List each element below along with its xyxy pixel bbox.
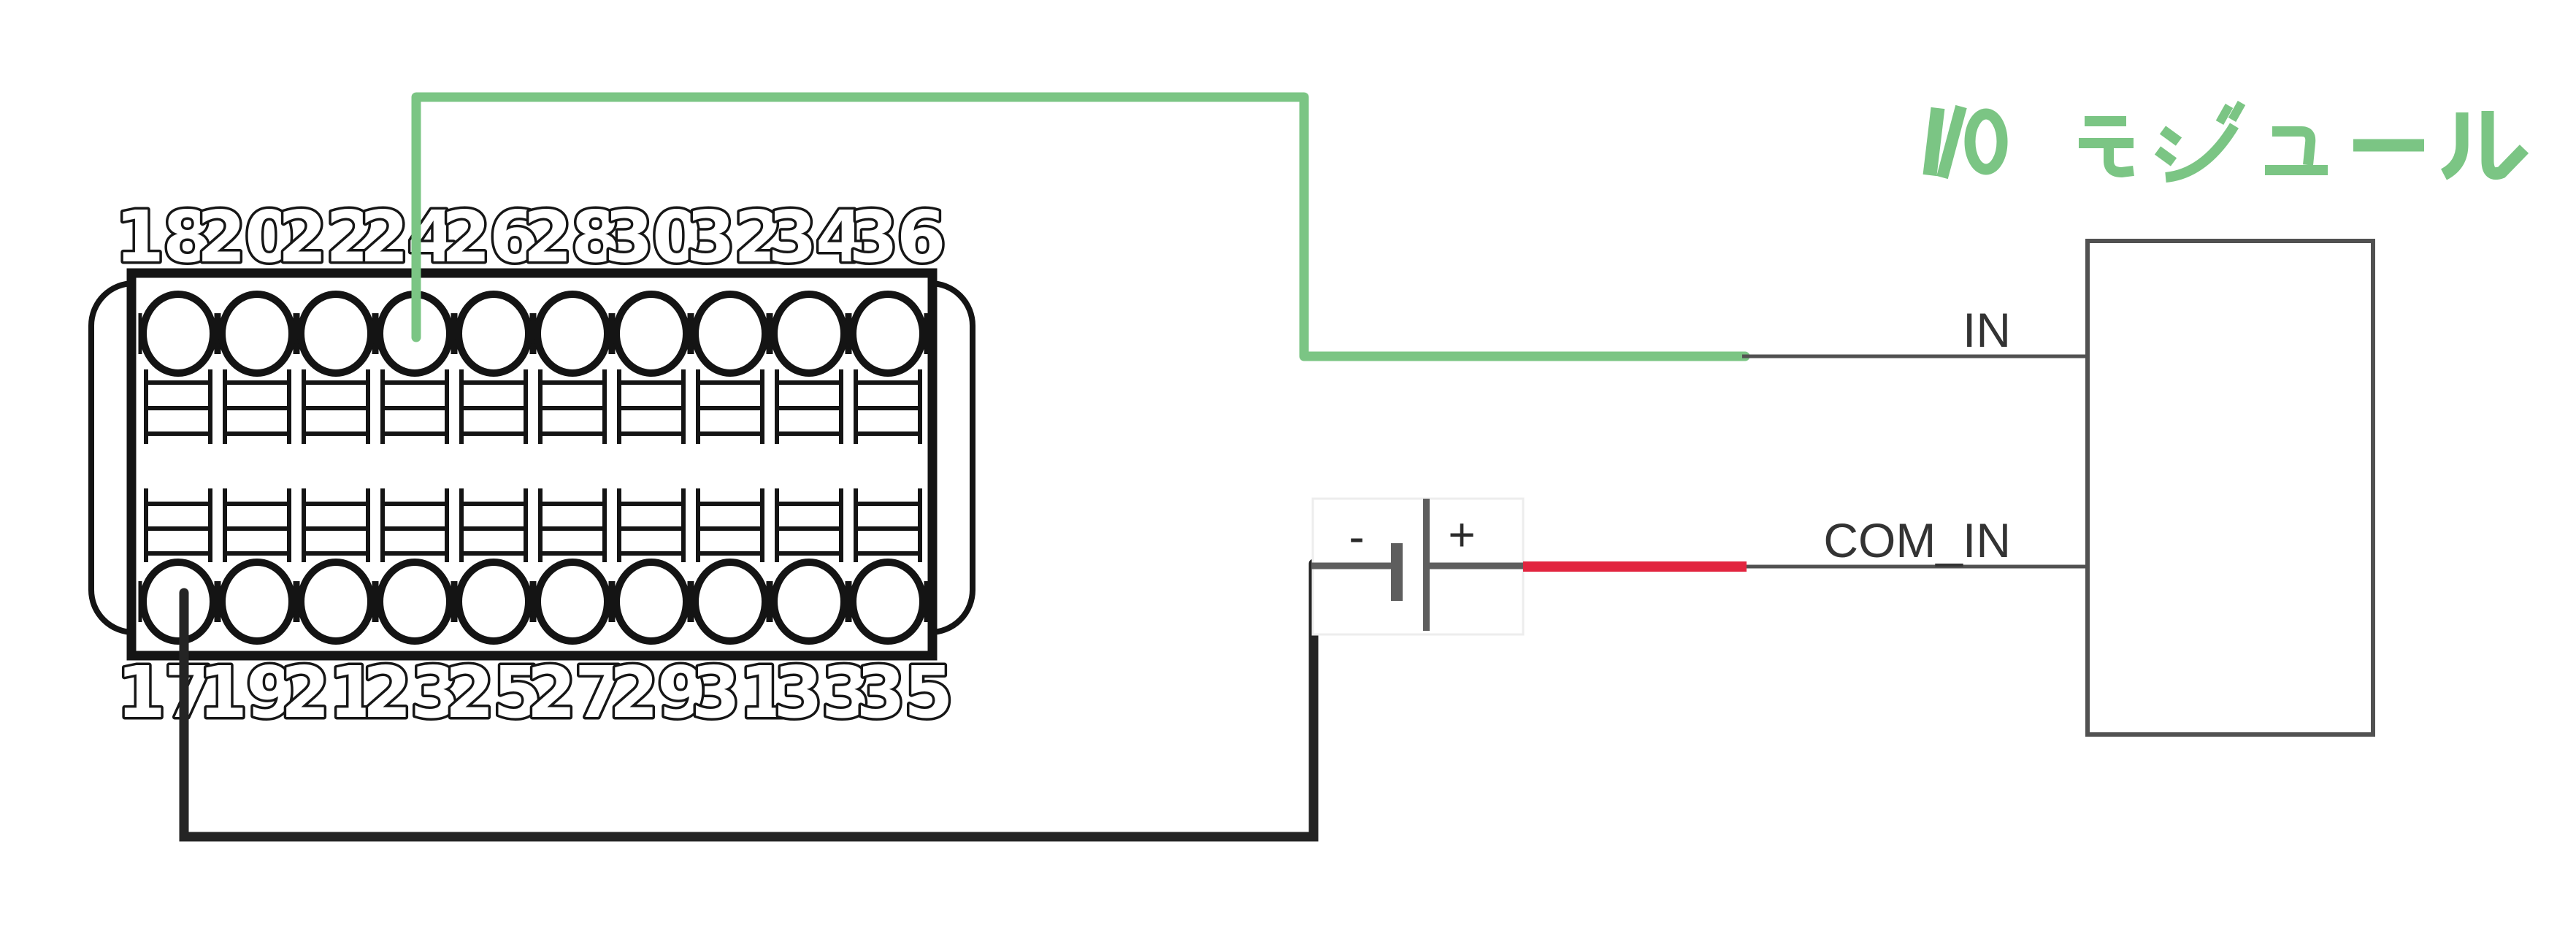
battery: - + xyxy=(1311,499,1523,634)
pin-number-bottom-9: 33 xyxy=(774,651,870,734)
battery-positive-label: + xyxy=(1448,508,1475,561)
io-module-input-label: IN xyxy=(1963,303,2011,357)
io-module-title: I/Oモジュール xyxy=(1930,98,2524,194)
title-glyph-yu xyxy=(2265,131,2328,170)
terminal-block: 18 20 22 24 26 28 30 32 34 36 17 19 21 2… xyxy=(91,196,973,734)
battery-negative-label: - xyxy=(1349,510,1364,563)
pin-number-top-10: 36 xyxy=(849,196,945,278)
title-glyph-O xyxy=(1970,114,2002,169)
battery-plate-positive xyxy=(1423,499,1430,631)
pin-number-bottom-2: 19 xyxy=(199,651,294,734)
pin-numbers-top: 18 20 22 24 26 28 30 32 34 36 xyxy=(115,196,945,278)
pin-numbers-bottom: 17 19 21 23 25 27 29 31 33 35 xyxy=(117,651,952,734)
title-glyph-ru xyxy=(2444,111,2524,174)
pin-number-bottom-6: 27 xyxy=(527,651,623,734)
io-wiring-diagram: 18 20 22 24 26 28 30 32 34 36 17 19 21 2… xyxy=(0,0,2576,936)
io-module-box xyxy=(2088,241,2373,734)
title-glyph-slash xyxy=(1942,107,1961,177)
io-module-common-label: COM_IN xyxy=(1823,513,2011,567)
title-glyph-mo xyxy=(2079,121,2134,172)
diagram-canvas: 18 20 22 24 26 28 30 32 34 36 17 19 21 2… xyxy=(0,0,2576,936)
pin-number-bottom-8: 31 xyxy=(691,651,787,734)
title-glyph-ji xyxy=(2158,126,2234,177)
pin-number-bottom-4: 23 xyxy=(363,651,459,734)
battery-plate-negative xyxy=(1391,543,1403,601)
title-glyph-ji-dakuten xyxy=(2220,103,2242,123)
pin-number-bottom-10: 35 xyxy=(856,651,952,734)
title-glyph-I xyxy=(1930,108,1938,175)
